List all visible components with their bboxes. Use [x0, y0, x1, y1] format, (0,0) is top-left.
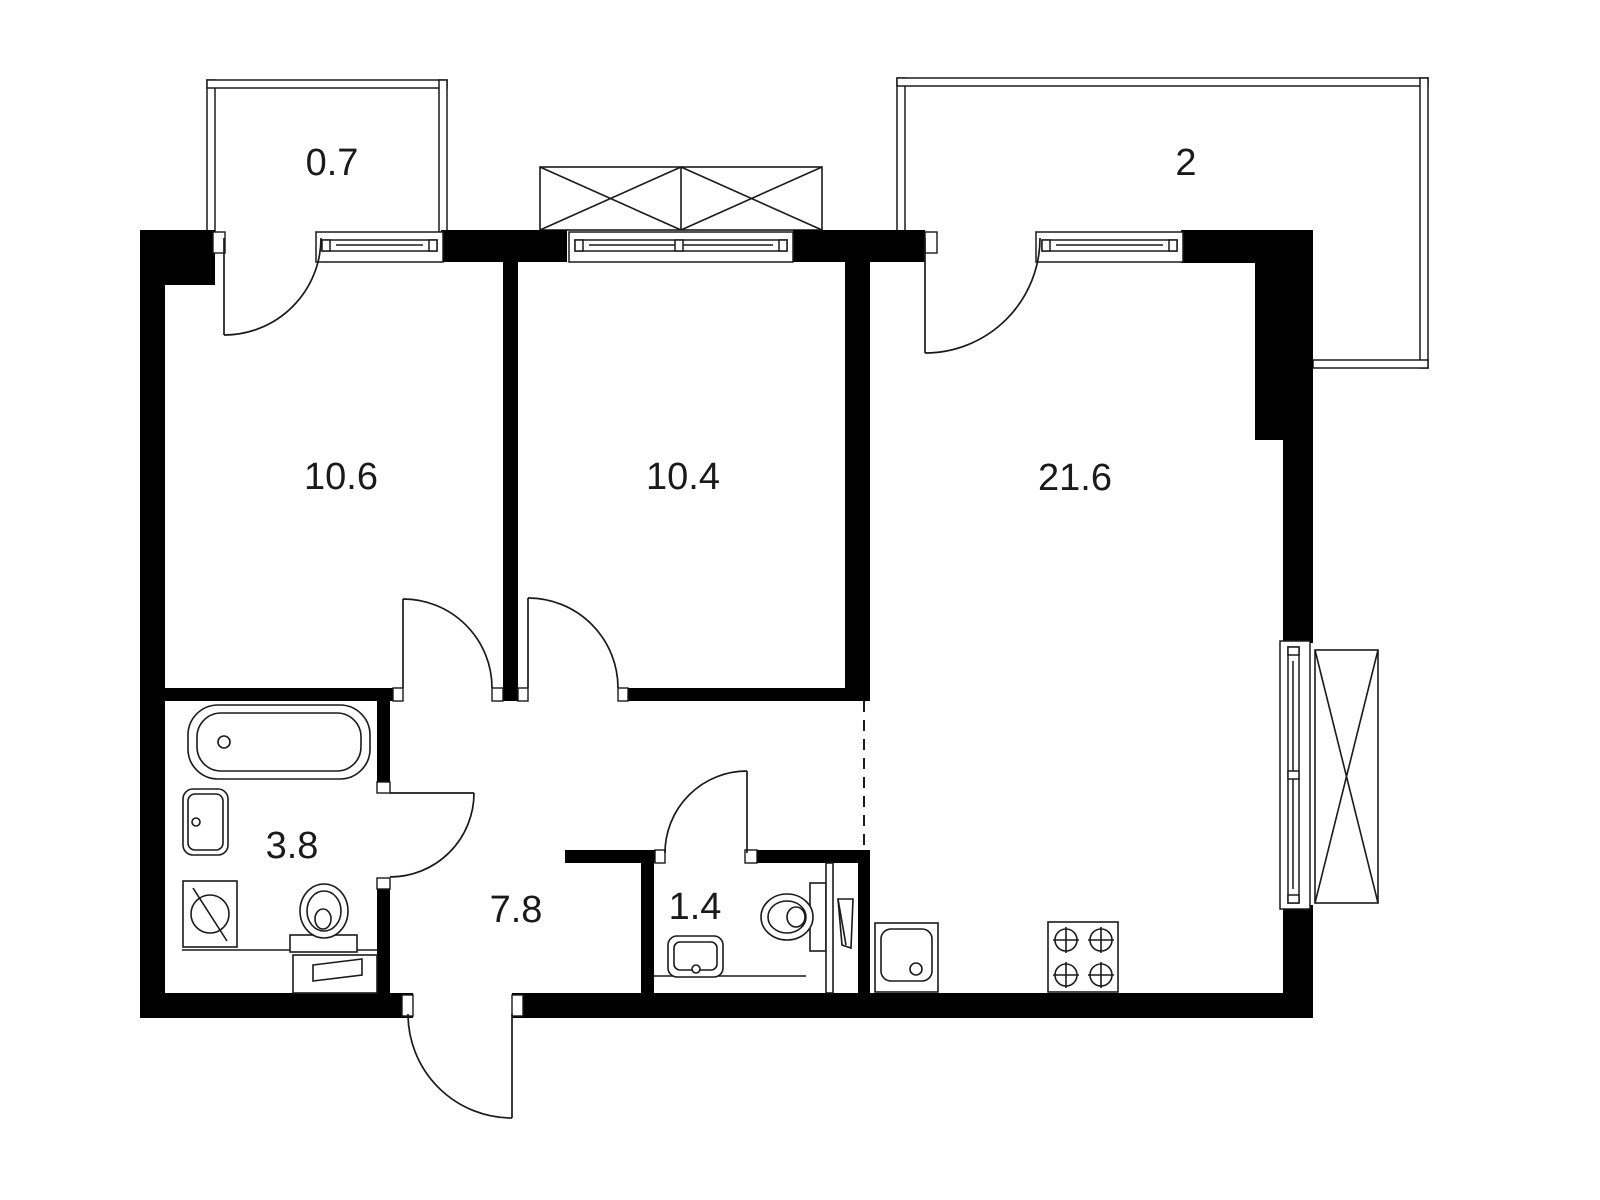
- wall-right-mid: [1283, 440, 1313, 643]
- wall-wc-top: [757, 850, 868, 863]
- window-mullion: [675, 240, 683, 251]
- window-living-right: [1280, 641, 1310, 909]
- room-label-bathroom: 3.8: [266, 825, 319, 867]
- ac-basket-right: [1315, 650, 1378, 903]
- balcony-wall: [1420, 78, 1428, 368]
- balcony-wall: [897, 78, 1428, 86]
- window-cap: [1169, 240, 1177, 251]
- door-jamb: [518, 688, 528, 701]
- sink-basin: [881, 929, 932, 981]
- bathroom-cabinet: [293, 955, 377, 993]
- room-label-wc: 1.4: [669, 886, 722, 928]
- door-jamb: [655, 850, 665, 863]
- window-mullion: [1288, 771, 1299, 779]
- window-room-middle: [569, 232, 793, 262]
- balcony-wall: [897, 78, 905, 232]
- window-living-top: [1036, 232, 1183, 262]
- wall-room-living: [845, 262, 870, 701]
- wall-rooms-bottom: [628, 688, 870, 701]
- washing-machine: [183, 881, 237, 947]
- sink-drain: [910, 963, 922, 975]
- window-cap: [429, 240, 437, 251]
- sink-drain: [192, 818, 200, 826]
- wall-left: [140, 230, 165, 1018]
- sink-drain: [692, 965, 700, 973]
- wall-wc-top-stub: [565, 850, 655, 863]
- toilet-hole: [787, 907, 805, 927]
- door-jamb: [377, 782, 390, 793]
- room-label-balcony-small: 0.7: [306, 142, 359, 184]
- stove: [1048, 922, 1118, 992]
- door-jamb: [393, 688, 403, 701]
- wall-between-rooms: [503, 262, 518, 688]
- wall-top: [441, 230, 567, 262]
- room-label-living-kitchen: 21.6: [1038, 457, 1112, 499]
- door-jamb: [512, 995, 523, 1016]
- room-label-room-left: 10.6: [304, 456, 378, 498]
- bathroom-sink: [183, 789, 228, 855]
- balcony-wall: [207, 80, 447, 88]
- window-cap: [1288, 647, 1299, 655]
- kitchen-sink: [875, 923, 938, 992]
- door-jamb: [377, 878, 390, 889]
- wall-right-upper: [1255, 230, 1313, 440]
- wc-sink: [668, 936, 723, 977]
- door-jamb: [618, 688, 628, 701]
- room-label-hallway: 7.8: [490, 889, 543, 931]
- window-cap: [779, 240, 787, 251]
- window-cap: [1042, 240, 1050, 251]
- door-jamb: [402, 995, 413, 1016]
- balcony-wall: [1313, 360, 1428, 368]
- wall-rooms-bottom: [160, 688, 393, 701]
- wall-top-left-pier: [140, 230, 215, 285]
- wall-top: [793, 230, 925, 262]
- window-cap: [322, 240, 330, 251]
- balcony-wall: [207, 80, 215, 232]
- wall-bathroom-right: [377, 878, 390, 993]
- wall-wc-right: [858, 850, 870, 993]
- bathtub: [188, 705, 370, 779]
- window-cap: [1288, 895, 1299, 903]
- door-jamb: [925, 232, 937, 253]
- wall-wc-left: [641, 858, 654, 993]
- balcony-wall: [439, 80, 447, 232]
- window-cap: [575, 240, 583, 251]
- wall-bottom-right: [512, 993, 1313, 1018]
- wall-bathroom-right: [377, 701, 390, 793]
- room-label-room-middle: 10.4: [646, 456, 720, 498]
- wall-rooms-bottom: [503, 688, 518, 701]
- window-room-left: [316, 232, 443, 262]
- room-label-balcony-large: 2: [1175, 142, 1196, 184]
- floor-plan: 0.7 2 10.6 10.4 21.6 3.8 7.8 1.4: [0, 0, 1600, 1200]
- wc-duct-partition: [826, 863, 833, 993]
- bathtub-drain: [218, 736, 230, 748]
- wall-bottom-left: [140, 993, 413, 1018]
- toilet-hole: [315, 909, 331, 929]
- door-jamb: [492, 688, 503, 701]
- ac-basket-top: [540, 167, 822, 230]
